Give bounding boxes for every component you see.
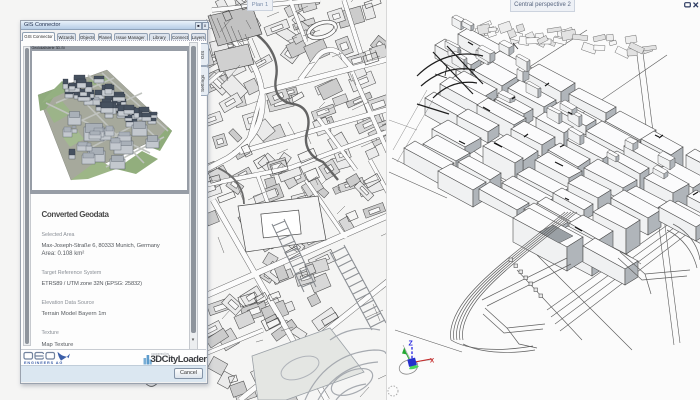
svg-text:Z: Z — [409, 341, 414, 348]
svg-text:X: X — [430, 358, 435, 365]
